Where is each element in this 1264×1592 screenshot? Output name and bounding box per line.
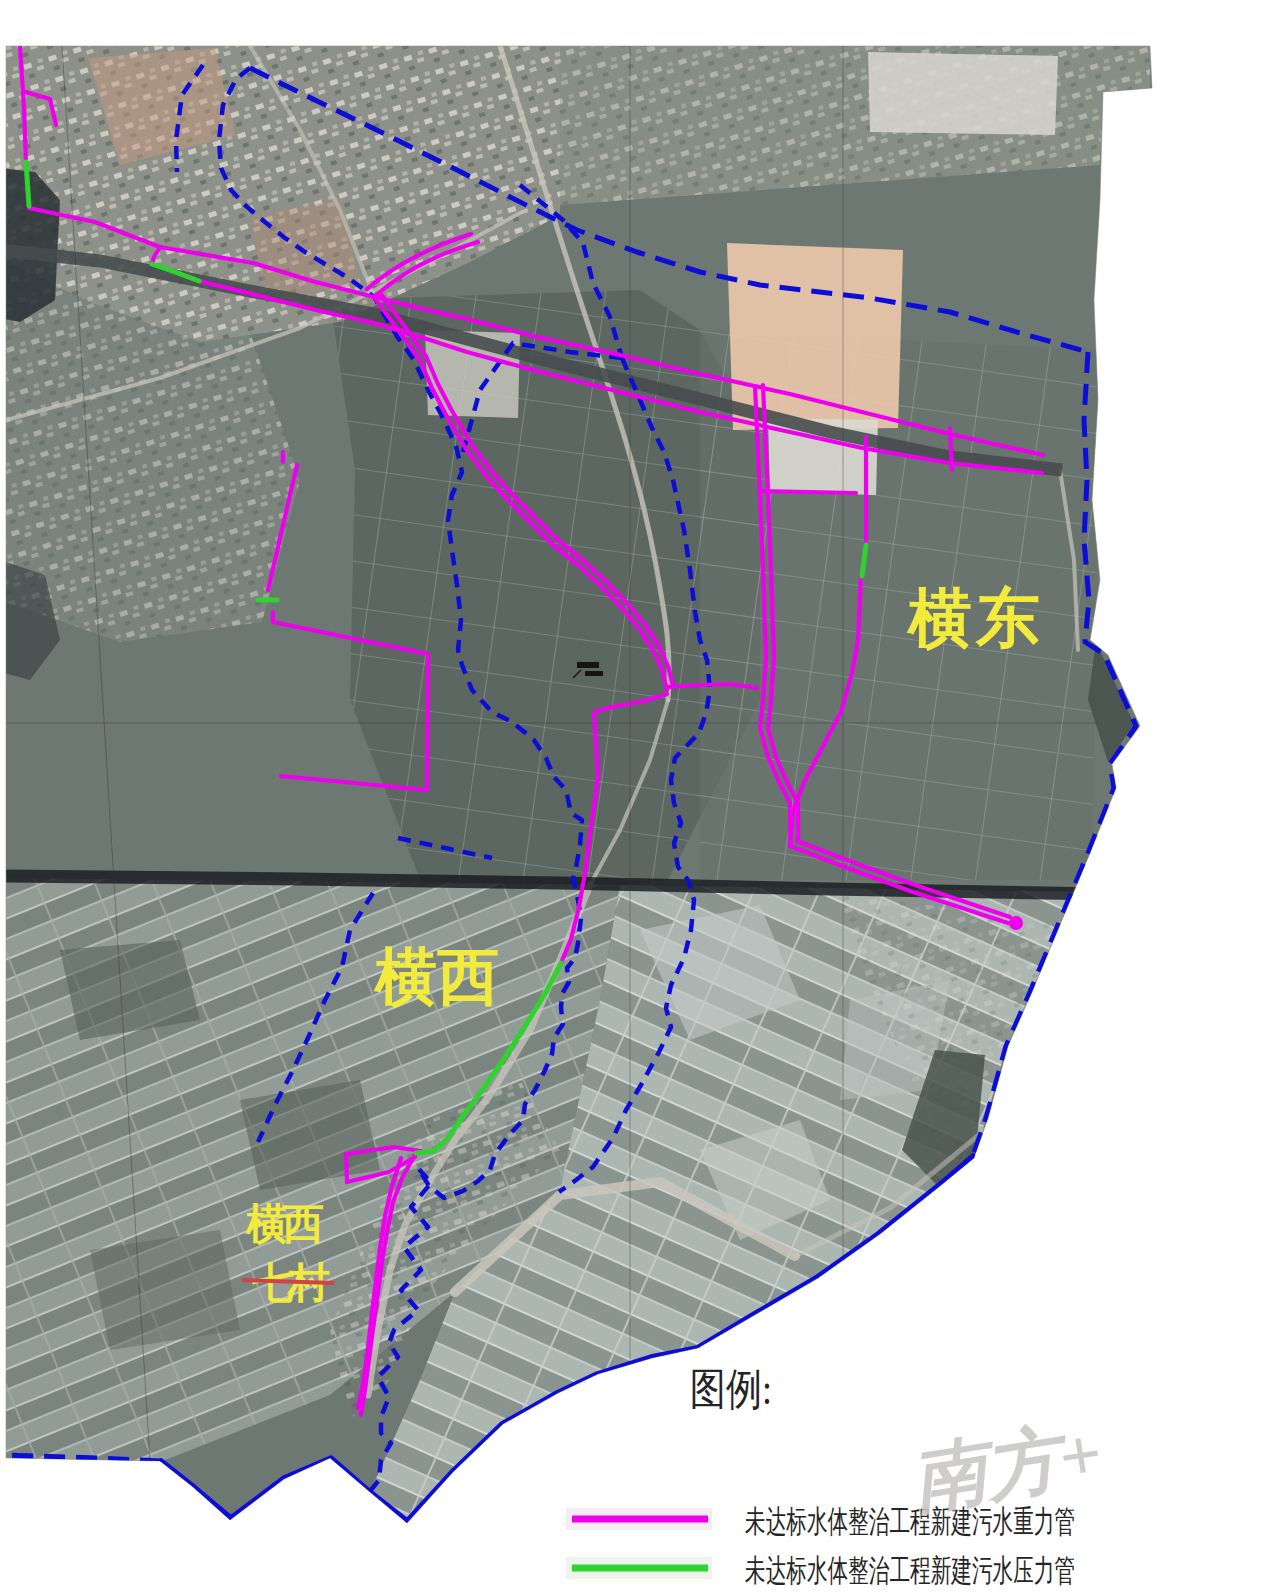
region-label-hengxi: 横西 xyxy=(373,942,499,1011)
map-sheet: 横东 横西 横西 七村 图例: 未达标水体整治工程新建污水重力管 未达标水体整治… xyxy=(0,0,1264,1592)
factory-block xyxy=(868,52,1058,135)
satellite-base xyxy=(0,0,1264,1592)
pipe-endpoint-blob xyxy=(1009,916,1023,930)
legend-gravity-label: 未达标水体整治工程新建污水重力管 xyxy=(745,1504,1075,1539)
region-label-qicun-line1: 横西 xyxy=(245,1200,324,1247)
legend-title: 图例: xyxy=(690,1365,772,1414)
watermark-nanfangplus: 南方+ xyxy=(907,1411,1108,1522)
satellite-map: 横东 横西 横西 七村 图例: 未达标水体整治工程新建污水重力管 未达标水体整治… xyxy=(0,0,1264,1592)
legend-pressure-label: 未达标水体整治工程新建污水压力管 xyxy=(745,1553,1075,1588)
